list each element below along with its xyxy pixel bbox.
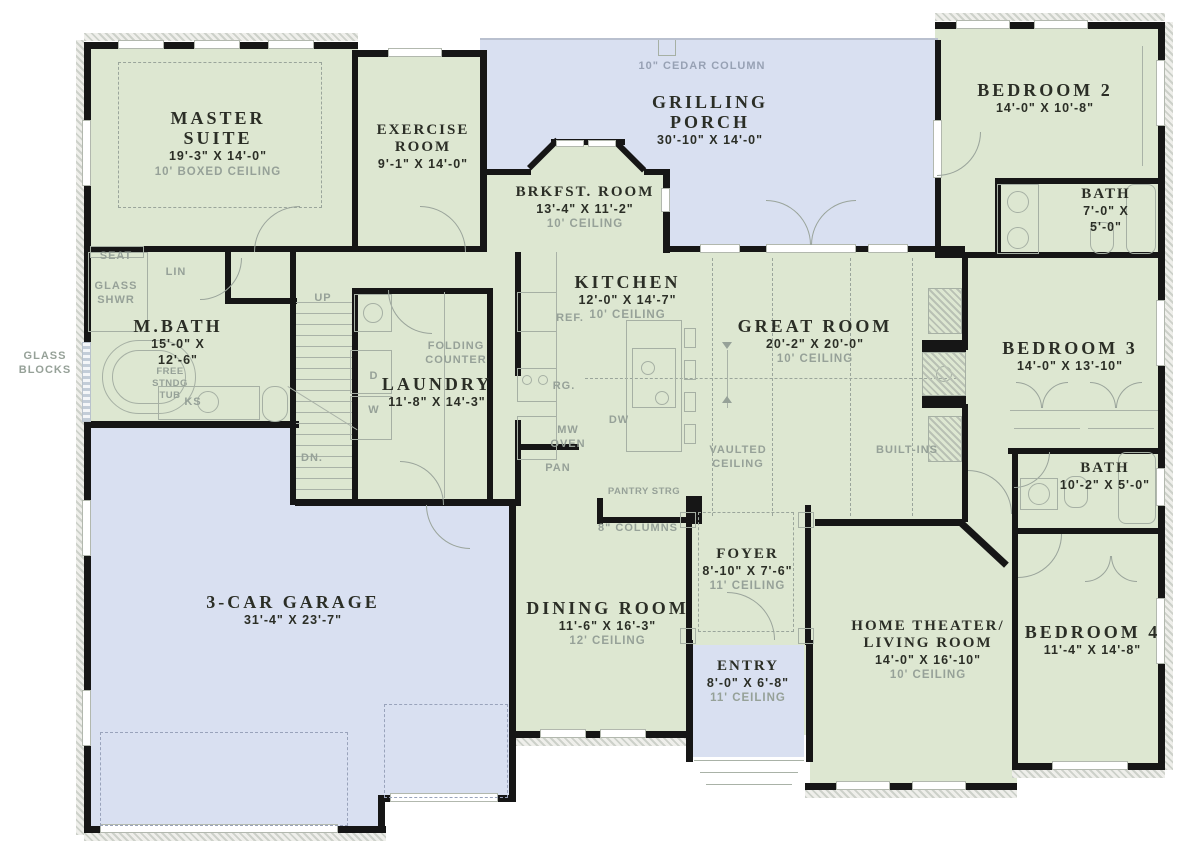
window	[661, 188, 670, 212]
window	[600, 729, 646, 738]
window	[194, 40, 240, 49]
wall-segment	[806, 640, 813, 762]
wall-segment	[509, 505, 516, 802]
fixture	[1090, 222, 1114, 254]
window	[1052, 761, 1128, 770]
window	[1156, 60, 1165, 126]
staircase	[296, 292, 352, 498]
greatroom-column-dash	[712, 258, 713, 516]
fixture	[517, 292, 557, 332]
greatroom-column-dash	[772, 258, 773, 516]
garage-notch	[385, 802, 516, 832]
fixture	[684, 360, 696, 380]
fixture	[262, 386, 288, 422]
fixture	[517, 416, 557, 460]
floor-plan: MASTER SUITE 19'-3" X 14'-0" 10' BOXED C…	[0, 0, 1200, 864]
detail-line	[444, 292, 445, 498]
fixture	[684, 328, 696, 348]
fixture	[684, 424, 696, 444]
fixture	[517, 368, 557, 402]
window	[82, 120, 91, 186]
wall-segment	[480, 50, 487, 252]
fixture	[798, 512, 814, 528]
fixture	[1118, 452, 1156, 524]
detail-line	[694, 760, 804, 761]
built-in-cabinet	[928, 288, 962, 334]
fixture-circle	[1007, 227, 1029, 249]
detail-line	[1142, 46, 1143, 166]
fixture-circle	[655, 391, 669, 405]
fixture-circle	[538, 375, 548, 385]
fixture	[88, 252, 148, 332]
window	[268, 40, 314, 49]
wall-segment	[487, 288, 493, 505]
entry-floor	[692, 645, 804, 757]
fixture	[680, 628, 696, 644]
wall-segment	[686, 640, 693, 762]
window	[540, 729, 586, 738]
detail-line	[1088, 428, 1154, 429]
wall-segment	[487, 169, 531, 175]
fixture	[684, 392, 696, 412]
vault-arrow-down	[722, 342, 732, 349]
fixture-circle	[1007, 191, 1029, 213]
garage-bay-dash	[100, 732, 348, 826]
greatroom-column-dash	[912, 258, 913, 516]
fixture	[1064, 476, 1088, 508]
wall-segment	[225, 298, 297, 304]
fixture-circle	[363, 303, 383, 323]
fixture-circle	[641, 361, 655, 375]
window	[700, 244, 740, 253]
fixture	[350, 396, 392, 440]
vault-arrow-up	[722, 396, 732, 403]
window	[1156, 468, 1165, 506]
fixture	[90, 246, 144, 258]
window	[82, 500, 91, 556]
built-in-cabinet	[928, 416, 962, 462]
window	[912, 781, 966, 790]
brick-trim	[805, 790, 1017, 798]
wall-segment	[84, 428, 91, 833]
window	[868, 244, 908, 253]
fixture-circle	[197, 391, 219, 413]
garage-bay-dash	[384, 704, 508, 798]
brick-trim	[1165, 22, 1173, 770]
fixture-circle	[1028, 483, 1050, 505]
porch-edge-line	[480, 38, 938, 40]
window	[388, 48, 442, 57]
fixture-circle	[522, 375, 532, 385]
fixture	[680, 512, 696, 528]
wall-segment	[922, 340, 966, 352]
wall-segment	[935, 252, 1158, 258]
glass-block-window	[82, 342, 91, 422]
wall-segment	[815, 519, 965, 526]
wall-segment	[84, 421, 299, 428]
wall-segment	[962, 258, 968, 350]
window	[766, 244, 856, 253]
window	[956, 20, 1010, 29]
detail-line	[700, 772, 798, 773]
fixture	[1126, 184, 1156, 254]
brick-trim	[515, 738, 693, 746]
detail-line	[1010, 410, 1158, 411]
window	[1034, 20, 1088, 29]
window	[82, 690, 91, 746]
brick-trim	[84, 833, 386, 841]
greatroom-column-dash	[850, 258, 851, 516]
wall-segment	[352, 50, 358, 252]
fireplace	[922, 352, 966, 396]
fixture	[632, 348, 676, 408]
wall-segment	[922, 396, 966, 408]
window	[118, 40, 164, 49]
master-boxed-ceiling-dash	[118, 62, 322, 208]
note-glass-blocks: GLASS BLOCKS	[14, 350, 76, 378]
exercise-room-floor	[352, 50, 486, 252]
window	[1156, 300, 1165, 366]
fixture	[798, 628, 814, 644]
detail-line	[556, 252, 557, 460]
detail-line	[1014, 428, 1080, 429]
window	[588, 140, 616, 147]
fixture	[658, 38, 676, 56]
brick-trim	[1012, 770, 1165, 778]
fixture	[350, 350, 392, 394]
window	[1156, 598, 1165, 664]
window	[836, 781, 890, 790]
detail-line	[706, 784, 792, 785]
window	[556, 140, 584, 147]
